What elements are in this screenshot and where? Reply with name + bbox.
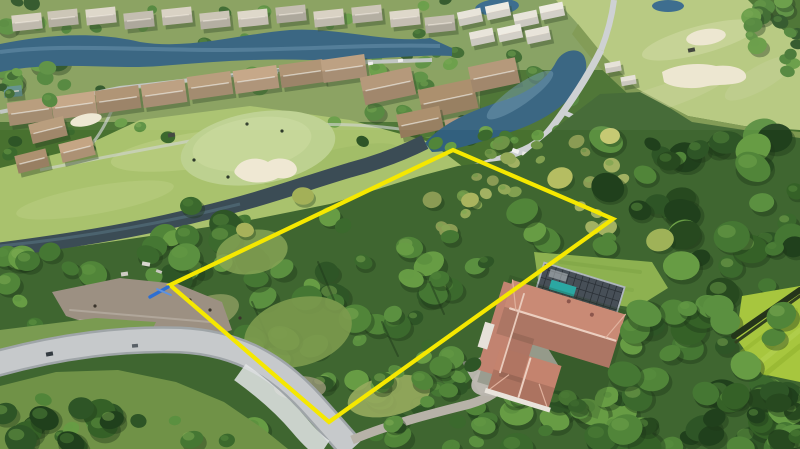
paint-shape (779, 215, 789, 222)
paint-shape (486, 150, 492, 154)
paint-shape (611, 418, 629, 431)
paint-shape (767, 242, 777, 249)
paint-shape (18, 253, 30, 262)
aerial-photo (0, 0, 800, 449)
paint-shape (208, 308, 211, 311)
paint-shape (431, 272, 441, 279)
paint-shape (660, 153, 672, 162)
paint-shape (81, 264, 96, 275)
paint-shape (60, 433, 74, 443)
paint-shape (588, 426, 604, 438)
paint-shape (769, 305, 784, 316)
paint-shape (182, 199, 193, 207)
paint-shape (192, 158, 195, 161)
atmospheric-haze (0, 0, 800, 130)
paint-shape (503, 437, 520, 449)
paint-shape (385, 420, 393, 426)
paint-shape (409, 313, 417, 319)
paint-shape (472, 173, 477, 177)
paint-shape (354, 335, 361, 340)
paint-shape (238, 316, 241, 319)
paint-shape (221, 435, 229, 441)
paint-shape (32, 408, 47, 419)
paint-shape (689, 142, 701, 150)
paint-shape (8, 429, 24, 441)
paint-shape (29, 319, 37, 325)
paint-shape (416, 253, 432, 265)
paint-shape (171, 246, 187, 258)
paint-shape (605, 160, 613, 166)
paint-shape (132, 344, 138, 348)
paint-shape (444, 441, 453, 448)
paint-shape (446, 143, 452, 147)
paint-shape (713, 131, 730, 143)
paint-shape (680, 302, 690, 309)
paint-shape (93, 304, 96, 307)
paint-shape (14, 296, 22, 302)
paint-shape (494, 137, 503, 144)
paint-shape (581, 149, 586, 153)
paint-shape (178, 228, 190, 237)
paint-shape (721, 258, 734, 267)
paint-shape (718, 225, 736, 238)
paint-shape (480, 257, 488, 263)
aerial-photo-canvas (0, 0, 800, 449)
paint-shape (102, 412, 114, 421)
paint-shape (461, 210, 466, 214)
paint-shape (738, 154, 757, 168)
paint-shape (474, 418, 486, 427)
paint-shape (631, 203, 643, 211)
paint-shape (183, 432, 195, 441)
paint-shape (717, 338, 728, 346)
paint-shape (585, 178, 592, 183)
paint-shape (0, 0, 800, 130)
paint-shape (401, 270, 414, 279)
paint-shape (413, 373, 425, 381)
paint-shape (533, 131, 539, 136)
paint-shape (499, 185, 505, 190)
photo-paint-layer (0, 0, 800, 449)
paint-shape (213, 214, 229, 226)
paint-shape (356, 256, 365, 263)
paint-shape (749, 409, 758, 416)
paint-shape (788, 185, 797, 192)
paint-shape (4, 149, 12, 155)
paint-shape (65, 423, 73, 429)
paint-shape (511, 137, 515, 140)
paint-shape (226, 175, 229, 178)
paint-shape (374, 373, 385, 381)
paint-shape (212, 228, 229, 240)
paint-shape (710, 282, 727, 294)
